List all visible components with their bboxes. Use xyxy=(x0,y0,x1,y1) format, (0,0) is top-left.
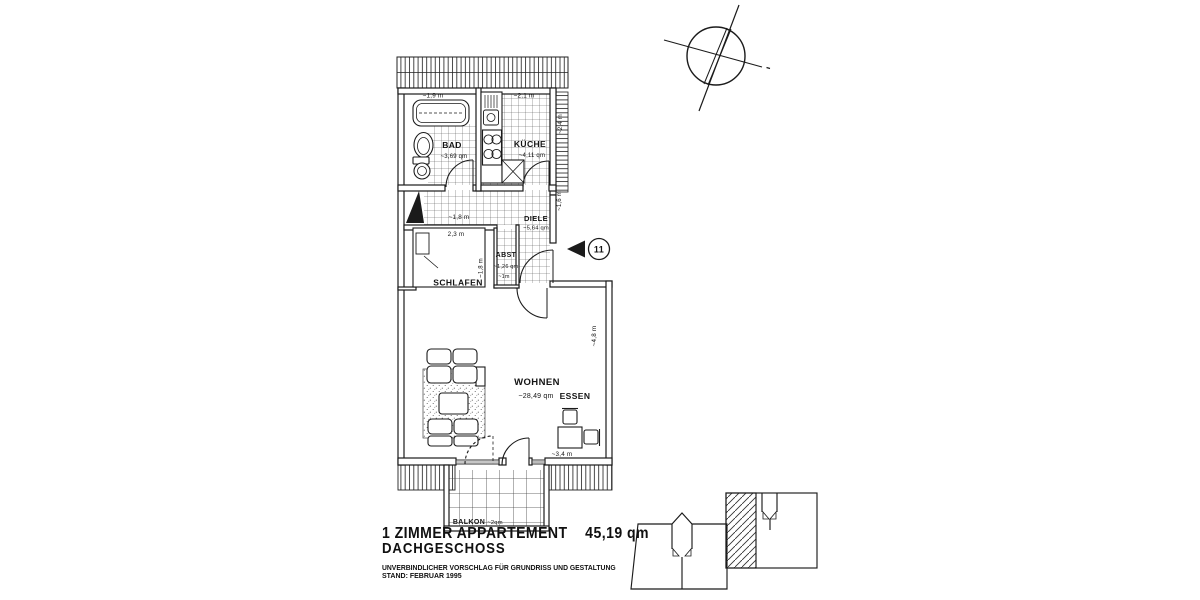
schlafen-label: SCHLAFEN xyxy=(433,278,482,288)
north-arrow xyxy=(664,5,770,111)
wohnen-area: ~28,49 qm xyxy=(518,393,553,400)
bad-area: ~3,69 qm xyxy=(441,154,468,160)
bad-label: BAD xyxy=(442,140,462,150)
dining-table xyxy=(558,427,582,448)
appliance-space xyxy=(502,160,524,183)
dining-set xyxy=(558,409,600,449)
diele-area: ~5,64 qm xyxy=(523,226,549,232)
kueche-area: ~4,11 qm xyxy=(519,153,545,159)
floorplan-drawing: BAD ~3,69 qm ~1,9 m xyxy=(0,0,1200,600)
dim-kueche-width: ~2,1 m xyxy=(514,93,535,100)
unit-marker: 11 xyxy=(567,239,610,260)
unit-number: 11 xyxy=(594,245,604,255)
chimney-block xyxy=(406,191,424,223)
title-block: 1 ZIMMER APPARTEMENT 45,19 qm DACHGESCHO… xyxy=(382,526,685,581)
abst-area: ~1,26 qm xyxy=(494,264,519,270)
floorplan-page: BAD ~3,69 qm ~1,9 m xyxy=(0,0,1200,600)
chair xyxy=(584,430,598,444)
wohnen-label: WOHNEN xyxy=(514,377,560,388)
stove-hob xyxy=(483,130,502,165)
abst-label: ABST xyxy=(496,252,517,259)
floor-name: DACHGESCHOSS xyxy=(382,541,649,556)
abst-width: ~1m xyxy=(498,274,510,280)
disclaimer-text: UNVERBINDLICHER VORSCHLAG FÜR GRUNDRISS … xyxy=(382,565,676,573)
balkon: BALKON ~2qm xyxy=(444,465,549,531)
dim-bed-length: 2,3 m xyxy=(448,231,465,238)
entrance-arrow-icon xyxy=(567,241,585,258)
dim-bed-width: ~1,8 m xyxy=(479,258,485,278)
wohnen-door-swing xyxy=(517,288,547,318)
washbasin xyxy=(414,133,433,158)
status-date: STAND: FEBRUAR 1995 xyxy=(382,573,685,581)
coffee-table xyxy=(439,393,468,414)
title-row: 1 ZIMMER APPARTEMENT 45,19 qm xyxy=(382,526,649,541)
dim-kueche-depth: ~2,4 m xyxy=(558,114,564,134)
diele-label: DIELE xyxy=(524,214,548,223)
key-plan-unit-highlight xyxy=(726,493,756,568)
essen-label: ESSEN xyxy=(560,391,591,401)
dim-diele-depth: ~1,6 m xyxy=(557,191,563,211)
apartment-title: 1 ZIMMER APPARTEMENT xyxy=(382,526,568,541)
apartment-plan: BAD ~3,69 qm ~1,9 m xyxy=(397,57,612,531)
dim-wohnen-width: ~3,4 m xyxy=(552,451,573,458)
kueche-label: KÜCHE xyxy=(514,139,546,149)
dim-bad-width: ~1,9 m xyxy=(423,93,444,100)
toilet xyxy=(413,157,430,179)
apartment-total-area: 45,19 qm xyxy=(585,526,649,541)
dim-wohnen-depth: ~4,8 m xyxy=(591,326,598,347)
room-schlafen: 2,3 m ~1,8 m SCHLAFEN xyxy=(413,228,485,288)
chair xyxy=(563,410,577,424)
dim-flur-width: ~1,8 m xyxy=(449,214,470,221)
room-wohnen: WOHNEN ~28,49 qm ESSEN ~4,8 m ~3,4 m xyxy=(423,326,600,465)
